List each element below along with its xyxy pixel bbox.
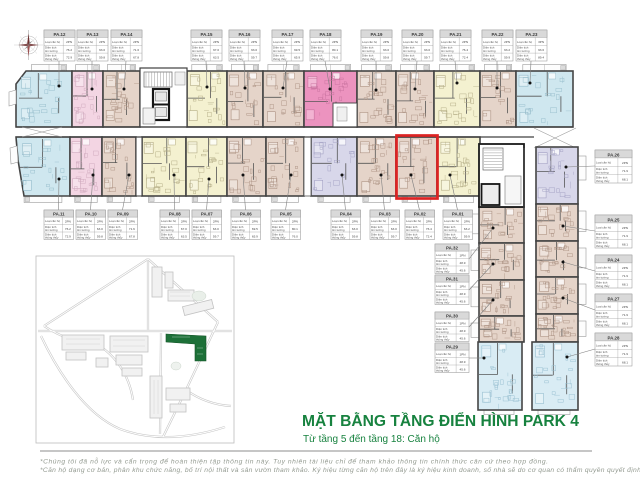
svg-text:Loại căn hộ: Loại căn hộ: [78, 40, 93, 44]
svg-text:thông thủy: thông thủy: [232, 236, 246, 240]
svg-text:69.5: 69.5: [294, 48, 300, 52]
svg-text:71.9: 71.9: [622, 274, 628, 278]
svg-text:76.2: 76.2: [66, 48, 72, 52]
svg-text:tim tường: tim tường: [596, 236, 609, 240]
svg-text:76.4: 76.4: [462, 48, 468, 52]
svg-text:thông thủy: thông thủy: [230, 57, 244, 61]
svg-text:PA.13: PA.13: [87, 32, 99, 37]
svg-text:2PN: 2PN: [391, 219, 397, 223]
svg-text:63.0: 63.0: [251, 48, 257, 52]
svg-text:thông thủy: thông thủy: [45, 236, 59, 240]
svg-text:71.6: 71.6: [133, 48, 139, 52]
svg-text:76.0: 76.0: [292, 234, 298, 238]
svg-text:72.9: 72.9: [65, 234, 71, 238]
svg-text:thông thủy: thông thủy: [436, 270, 450, 274]
svg-text:71.6: 71.6: [129, 227, 135, 231]
svg-text:71.9: 71.9: [622, 313, 628, 317]
svg-text:Loại căn hộ: Loại căn hộ: [403, 40, 418, 44]
svg-text:tim tường: tim tường: [596, 171, 609, 175]
svg-text:48.9: 48.9: [459, 261, 465, 265]
svg-text:63.0: 63.0: [391, 227, 397, 231]
svg-text:thông thủy: thông thủy: [406, 236, 420, 240]
svg-text:65.9: 65.9: [294, 56, 300, 60]
svg-text:71.9: 71.9: [622, 234, 628, 238]
svg-text:67.0: 67.0: [181, 227, 187, 231]
svg-text:63.0: 63.0: [97, 227, 103, 231]
svg-text:tim tường: tim tường: [273, 49, 286, 53]
svg-text:1PN: 1PN: [459, 321, 465, 325]
svg-text:Loại căn hộ: Loại căn hộ: [596, 266, 611, 270]
svg-text:PA.30: PA.30: [446, 314, 458, 319]
svg-text:Từ tầng 5 đến tầng 18: Căn hộ: Từ tầng 5 đến tầng 18: Căn hộ: [303, 433, 440, 445]
svg-text:Loại căn hộ: Loại căn hộ: [109, 219, 124, 223]
svg-text:Loại căn hộ: Loại căn hộ: [192, 40, 207, 44]
svg-text:68.1: 68.1: [622, 322, 628, 326]
svg-text:Loại căn hộ: Loại căn hộ: [230, 40, 245, 44]
svg-text:59.7: 59.7: [391, 234, 397, 238]
svg-text:Loại căn hộ: Loại căn hộ: [232, 219, 247, 223]
svg-text:thông thủy: thông thủy: [109, 236, 123, 240]
svg-text:tim tường: tim tường: [403, 49, 416, 53]
svg-text:Loại căn hộ: Loại căn hộ: [193, 219, 208, 223]
svg-text:PA.08: PA.08: [169, 212, 181, 217]
svg-text:thông thủy: thông thủy: [45, 57, 59, 61]
svg-text:48.9: 48.9: [459, 292, 465, 296]
svg-text:2PN: 2PN: [97, 219, 103, 223]
svg-text:PA.01: PA.01: [452, 212, 464, 217]
svg-text:2PN: 2PN: [426, 219, 432, 223]
svg-text:2PN: 2PN: [99, 40, 105, 44]
svg-text:Loại căn hộ: Loại căn hộ: [161, 219, 176, 223]
svg-text:Loại căn hộ: Loại căn hộ: [436, 253, 451, 257]
svg-text:MẶT BẰNG TẦNG ĐIỂN HÌNH PARK 4: MẶT BẰNG TẦNG ĐIỂN HÌNH PARK 4: [302, 411, 579, 430]
svg-text:thông thủy: thông thủy: [596, 179, 610, 183]
svg-text:thông thủy: thông thủy: [272, 236, 286, 240]
svg-text:PA.25: PA.25: [608, 217, 620, 222]
svg-text:PA.02: PA.02: [414, 212, 426, 217]
svg-text:tim tường: tim tường: [311, 49, 324, 53]
svg-text:71.9: 71.9: [622, 352, 628, 356]
svg-text:PA.10: PA.10: [85, 212, 97, 217]
svg-text:thông thủy: thông thủy: [596, 323, 610, 327]
svg-text:PA.19: PA.19: [371, 32, 383, 37]
svg-text:thông thủy: thông thủy: [403, 57, 417, 61]
svg-text:67.0: 67.0: [213, 48, 219, 52]
svg-text:thông thủy: thông thủy: [362, 57, 376, 61]
svg-text:59.9: 59.9: [464, 234, 470, 238]
svg-text:thông thủy: thông thủy: [78, 57, 92, 61]
svg-text:PA.23: PA.23: [526, 32, 538, 37]
svg-text:Loại căn hộ: Loại căn hộ: [77, 219, 92, 223]
svg-text:PA.07: PA.07: [201, 212, 213, 217]
svg-text:72.9: 72.9: [66, 56, 72, 60]
svg-text:76.2: 76.2: [65, 227, 71, 231]
svg-text:45.6: 45.6: [459, 367, 465, 371]
svg-text:80.1: 80.1: [332, 48, 338, 52]
svg-text:65.9: 65.9: [252, 234, 258, 238]
svg-text:2PN: 2PN: [622, 226, 628, 230]
svg-text:Loại căn hộ: Loại căn hộ: [45, 40, 60, 44]
svg-text:Loại căn hộ: Loại căn hộ: [517, 40, 532, 44]
svg-text:thông thủy: thông thủy: [596, 362, 610, 366]
svg-text:67.8: 67.8: [133, 56, 139, 60]
svg-text:Loại căn hộ: Loại căn hộ: [112, 40, 127, 44]
svg-text:2PN: 2PN: [292, 219, 298, 223]
svg-text:71.9: 71.9: [622, 169, 628, 173]
svg-text:PA.12: PA.12: [54, 32, 66, 37]
svg-text:thông thủy: thông thủy: [596, 244, 610, 248]
svg-text:59.7: 59.7: [424, 56, 430, 60]
svg-text:63.5: 63.5: [181, 234, 187, 238]
svg-text:59.8: 59.8: [352, 234, 358, 238]
svg-text:Loại căn hộ: Loại căn hộ: [311, 40, 326, 44]
svg-text:2PN: 2PN: [213, 219, 219, 223]
svg-text:2PN: 2PN: [251, 40, 257, 44]
svg-text:59.8: 59.8: [383, 56, 389, 60]
svg-text:thông thủy: thông thủy: [517, 57, 531, 61]
svg-text:2PN: 2PN: [252, 219, 258, 223]
svg-text:2PN: 2PN: [622, 161, 628, 165]
svg-text:thông thủy: thông thủy: [436, 301, 450, 305]
svg-text:Loại căn hộ: Loại căn hộ: [436, 321, 451, 325]
svg-text:tim tường: tim tường: [362, 49, 375, 53]
svg-text:68.1: 68.1: [622, 243, 628, 247]
svg-text:2PN: 2PN: [332, 40, 338, 44]
svg-text:2PN: 2PN: [464, 219, 470, 223]
svg-text:thông thủy: thông thủy: [436, 369, 450, 373]
svg-text:80.1: 80.1: [292, 227, 298, 231]
svg-text:63.5: 63.5: [213, 56, 219, 60]
svg-text:PA.29: PA.29: [446, 345, 458, 350]
svg-text:69.5: 69.5: [252, 227, 258, 231]
svg-text:63.2: 63.2: [464, 227, 470, 231]
svg-text:Loại căn hộ: Loại căn hộ: [596, 344, 611, 348]
svg-text:thông thủy: thông thủy: [371, 236, 385, 240]
svg-text:thông thủy: thông thủy: [483, 57, 497, 61]
svg-text:Loại căn hộ: Loại căn hộ: [436, 284, 451, 288]
svg-text:thông thủy: thông thủy: [311, 57, 325, 61]
svg-text:PA.20: PA.20: [412, 32, 424, 37]
svg-text:2PN: 2PN: [462, 40, 468, 44]
svg-text:Loại căn hộ: Loại căn hộ: [596, 226, 611, 230]
svg-text:tim tường: tim tường: [192, 49, 205, 53]
svg-text:thông thủy: thông thủy: [441, 57, 455, 61]
svg-text:tim tường: tim tường: [596, 276, 609, 280]
svg-text:PA.32: PA.32: [446, 246, 458, 251]
svg-text:2PN: 2PN: [129, 219, 135, 223]
svg-text:tim tường: tim tường: [112, 49, 125, 53]
svg-text:thông thủy: thông thủy: [192, 57, 206, 61]
svg-text:2PN: 2PN: [181, 219, 187, 223]
svg-text:PA.14: PA.14: [121, 32, 133, 37]
svg-text:67.8: 67.8: [129, 234, 135, 238]
svg-text:PA.27: PA.27: [608, 296, 620, 301]
svg-text:63.0: 63.0: [424, 48, 430, 52]
svg-text:68.1: 68.1: [622, 178, 628, 182]
svg-text:Loại căn hộ: Loại căn hộ: [273, 40, 288, 44]
svg-text:2PN: 2PN: [622, 305, 628, 309]
svg-text:63.2: 63.2: [504, 48, 510, 52]
svg-text:PA.11: PA.11: [53, 212, 65, 217]
svg-text:Loại căn hộ: Loại căn hộ: [406, 219, 421, 223]
svg-text:Loại căn hộ: Loại căn hộ: [436, 352, 451, 356]
svg-text:76.0: 76.0: [332, 56, 338, 60]
svg-text:PA.05: PA.05: [280, 212, 292, 217]
svg-text:59.8: 59.8: [99, 56, 105, 60]
svg-text:*Chúng tôi đã nỗ lực và cẩn tr: *Chúng tôi đã nỗ lực và cẩn trọng để hoà…: [40, 457, 549, 466]
svg-text:Loại căn hộ: Loại căn hộ: [444, 219, 459, 223]
svg-text:PA.24: PA.24: [608, 257, 620, 262]
svg-text:59.8: 59.8: [97, 234, 103, 238]
svg-text:PA.09: PA.09: [117, 212, 129, 217]
svg-text:tim tường: tim tường: [441, 49, 454, 53]
svg-text:PA.16: PA.16: [239, 32, 251, 37]
svg-text:63.0: 63.0: [99, 48, 105, 52]
svg-text:Loại căn hộ: Loại căn hộ: [332, 219, 347, 223]
svg-text:PA.06: PA.06: [240, 212, 252, 217]
svg-text:Loại căn hộ: Loại căn hộ: [596, 161, 611, 165]
svg-text:2PN: 2PN: [622, 266, 628, 270]
svg-text:PA.28: PA.28: [608, 335, 620, 340]
svg-text:48.9: 48.9: [459, 360, 465, 364]
svg-text:93.6: 93.6: [538, 48, 544, 52]
svg-text:Loại căn hộ: Loại căn hộ: [441, 40, 456, 44]
svg-text:72.4: 72.4: [462, 56, 468, 60]
svg-text:2PN: 2PN: [66, 40, 72, 44]
svg-text:89.4: 89.4: [538, 56, 544, 60]
svg-text:68.1: 68.1: [622, 283, 628, 287]
svg-text:PA.17: PA.17: [282, 32, 294, 37]
svg-text:Loại căn hộ: Loại căn hộ: [272, 219, 287, 223]
svg-text:tim tường: tim tường: [517, 49, 530, 53]
svg-text:Loại căn hộ: Loại căn hộ: [45, 219, 60, 223]
svg-text:tim tường: tim tường: [483, 49, 496, 53]
svg-text:thông thủy: thông thủy: [436, 338, 450, 342]
svg-text:Loại căn hộ: Loại căn hộ: [596, 305, 611, 309]
svg-text:thông thủy: thông thủy: [77, 236, 91, 240]
svg-text:3PN: 3PN: [538, 40, 544, 44]
svg-text:45.6: 45.6: [459, 268, 465, 272]
svg-text:1PN: 1PN: [459, 352, 465, 356]
svg-text:63.0: 63.0: [213, 227, 219, 231]
svg-text:2PN: 2PN: [622, 344, 628, 348]
svg-text:thông thủy: thông thủy: [112, 57, 126, 61]
svg-text:tim tường: tim tường: [596, 354, 609, 358]
svg-text:PA.31: PA.31: [446, 277, 458, 282]
svg-text:2PN: 2PN: [65, 219, 71, 223]
svg-text:45.6: 45.6: [459, 336, 465, 340]
svg-text:PA.21: PA.21: [450, 32, 462, 37]
svg-text:thông thủy: thông thủy: [273, 57, 287, 61]
svg-text:thông thủy: thông thủy: [193, 236, 207, 240]
svg-text:PA.26: PA.26: [608, 152, 620, 157]
svg-text:48.9: 48.9: [459, 329, 465, 333]
svg-text:thông thủy: thông thủy: [161, 236, 175, 240]
svg-text:63.0: 63.0: [352, 227, 358, 231]
svg-text:Loại căn hộ: Loại căn hộ: [371, 219, 386, 223]
svg-text:tim tường: tim tường: [596, 315, 609, 319]
svg-text:thông thủy: thông thủy: [332, 236, 346, 240]
svg-text:PA.03: PA.03: [379, 212, 391, 217]
svg-text:2PN: 2PN: [424, 40, 430, 44]
svg-text:Loại căn hộ: Loại căn hộ: [483, 40, 498, 44]
svg-text:2PN: 2PN: [383, 40, 389, 44]
svg-text:PA.04: PA.04: [340, 212, 352, 217]
svg-text:2PN: 2PN: [133, 40, 139, 44]
svg-text:PA.18: PA.18: [320, 32, 332, 37]
svg-text:*Căn hộ dạng cơ bản, phân khu: *Căn hộ dạng cơ bản, phân khu chức năng,…: [40, 465, 640, 474]
svg-text:2PN: 2PN: [352, 219, 358, 223]
svg-text:2PN: 2PN: [504, 40, 510, 44]
svg-text:72.4: 72.4: [426, 234, 432, 238]
svg-text:2PN: 2PN: [294, 40, 300, 44]
svg-text:tim tường: tim tường: [45, 49, 58, 53]
svg-text:tim tường: tim tường: [230, 49, 243, 53]
svg-text:thông thủy: thông thủy: [444, 236, 458, 240]
svg-text:76.4: 76.4: [426, 227, 432, 231]
svg-text:1PN: 1PN: [459, 284, 465, 288]
svg-text:1PN: 1PN: [459, 253, 465, 257]
svg-text:PA.15: PA.15: [201, 32, 213, 37]
svg-text:68.1: 68.1: [622, 361, 628, 365]
svg-text:45.6: 45.6: [459, 299, 465, 303]
svg-text:tim tường: tim tường: [78, 49, 91, 53]
svg-text:59.7: 59.7: [251, 56, 257, 60]
svg-text:63.0: 63.0: [383, 48, 389, 52]
svg-text:59.9: 59.9: [504, 56, 510, 60]
svg-text:PA.22: PA.22: [492, 32, 504, 37]
svg-text:thông thủy: thông thủy: [596, 284, 610, 288]
svg-text:2PN: 2PN: [213, 40, 219, 44]
svg-text:Loại căn hộ: Loại căn hộ: [362, 40, 377, 44]
svg-text:59.7: 59.7: [213, 234, 219, 238]
